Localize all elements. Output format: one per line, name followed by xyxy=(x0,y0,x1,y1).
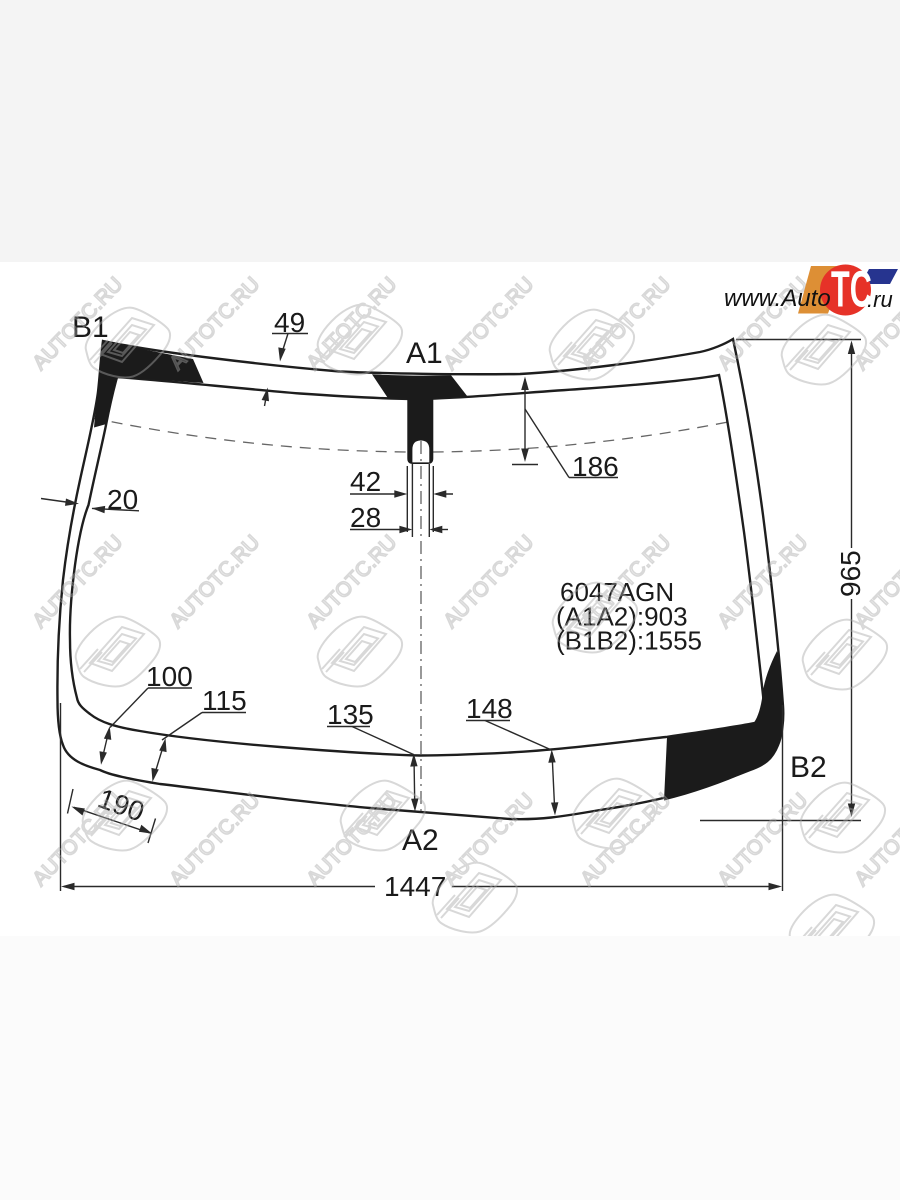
svg-text:148: 148 xyxy=(466,693,513,724)
svg-text:115: 115 xyxy=(202,685,247,716)
svg-text:A1: A1 xyxy=(406,337,443,370)
svg-text:965: 965 xyxy=(835,550,866,597)
svg-text:.ru: .ru xyxy=(867,287,893,312)
svg-text:1447: 1447 xyxy=(384,871,446,902)
svg-text:A2: A2 xyxy=(402,824,439,857)
svg-text:186: 186 xyxy=(572,451,619,482)
svg-text:20: 20 xyxy=(107,484,138,515)
svg-text:49: 49 xyxy=(274,307,305,338)
svg-text:42: 42 xyxy=(350,466,381,497)
svg-text:135: 135 xyxy=(327,699,374,730)
svg-text:100: 100 xyxy=(146,661,193,692)
svg-text:TC: TC xyxy=(831,260,872,317)
svg-text:28: 28 xyxy=(350,502,381,533)
svg-text:B2: B2 xyxy=(790,751,827,784)
svg-text:www.Auto: www.Auto xyxy=(724,285,831,312)
